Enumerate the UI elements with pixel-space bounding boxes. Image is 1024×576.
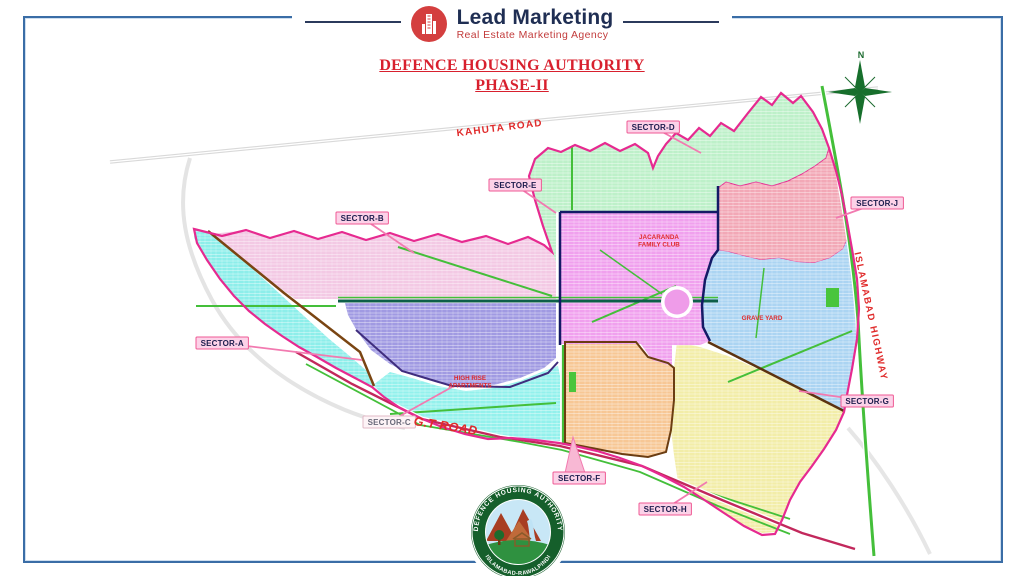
svg-text:SECTOR-B: SECTOR-B [341,214,384,223]
compass-north-label: N [858,50,865,60]
svg-text:SECTOR-E: SECTOR-E [494,181,537,190]
svg-text:GRAVE YARD: GRAVE YARD [742,315,783,322]
place-label-high-rise-apartments: HIGH RISEAPARTMENTS [448,375,491,390]
park-block [826,288,839,307]
svg-text:SECTOR-D: SECTOR-D [632,123,675,132]
park-strip [569,372,576,392]
svg-text:SECTOR-C: SECTOR-C [368,418,411,427]
page: Lead Marketing Real Estate Marketing Age… [0,0,1024,576]
svg-text:APARTMENTS: APARTMENTS [448,383,491,390]
svg-text:SECTOR-G: SECTOR-G [845,397,889,406]
compass-rose-icon: N [828,50,892,124]
dha-badge: DEFENCE HOUSING AUTHORITY ISLAMABAD-RAWA… [461,479,575,576]
svg-text:JACARANDA: JACARANDA [639,234,679,241]
southeast-road-line [848,428,930,554]
svg-text:SECTOR-H: SECTOR-H [644,505,687,514]
svg-text:SECTOR-A: SECTOR-A [201,339,244,348]
road-label-kahuta-road: KAHUTA ROAD [456,118,543,139]
svg-text:SECTOR-J: SECTOR-J [856,199,898,208]
svg-text:HIGH RISE: HIGH RISE [454,375,486,382]
place-label-jacaranda-family-club: JACARANDAFAMILY CLUB [638,234,680,249]
svg-text:FAMILY CLUB: FAMILY CLUB [638,242,680,249]
roundabout [665,290,690,315]
place-label-grave-yard: GRAVE YARD [742,315,783,322]
region-sector-purple-streets [345,303,556,388]
